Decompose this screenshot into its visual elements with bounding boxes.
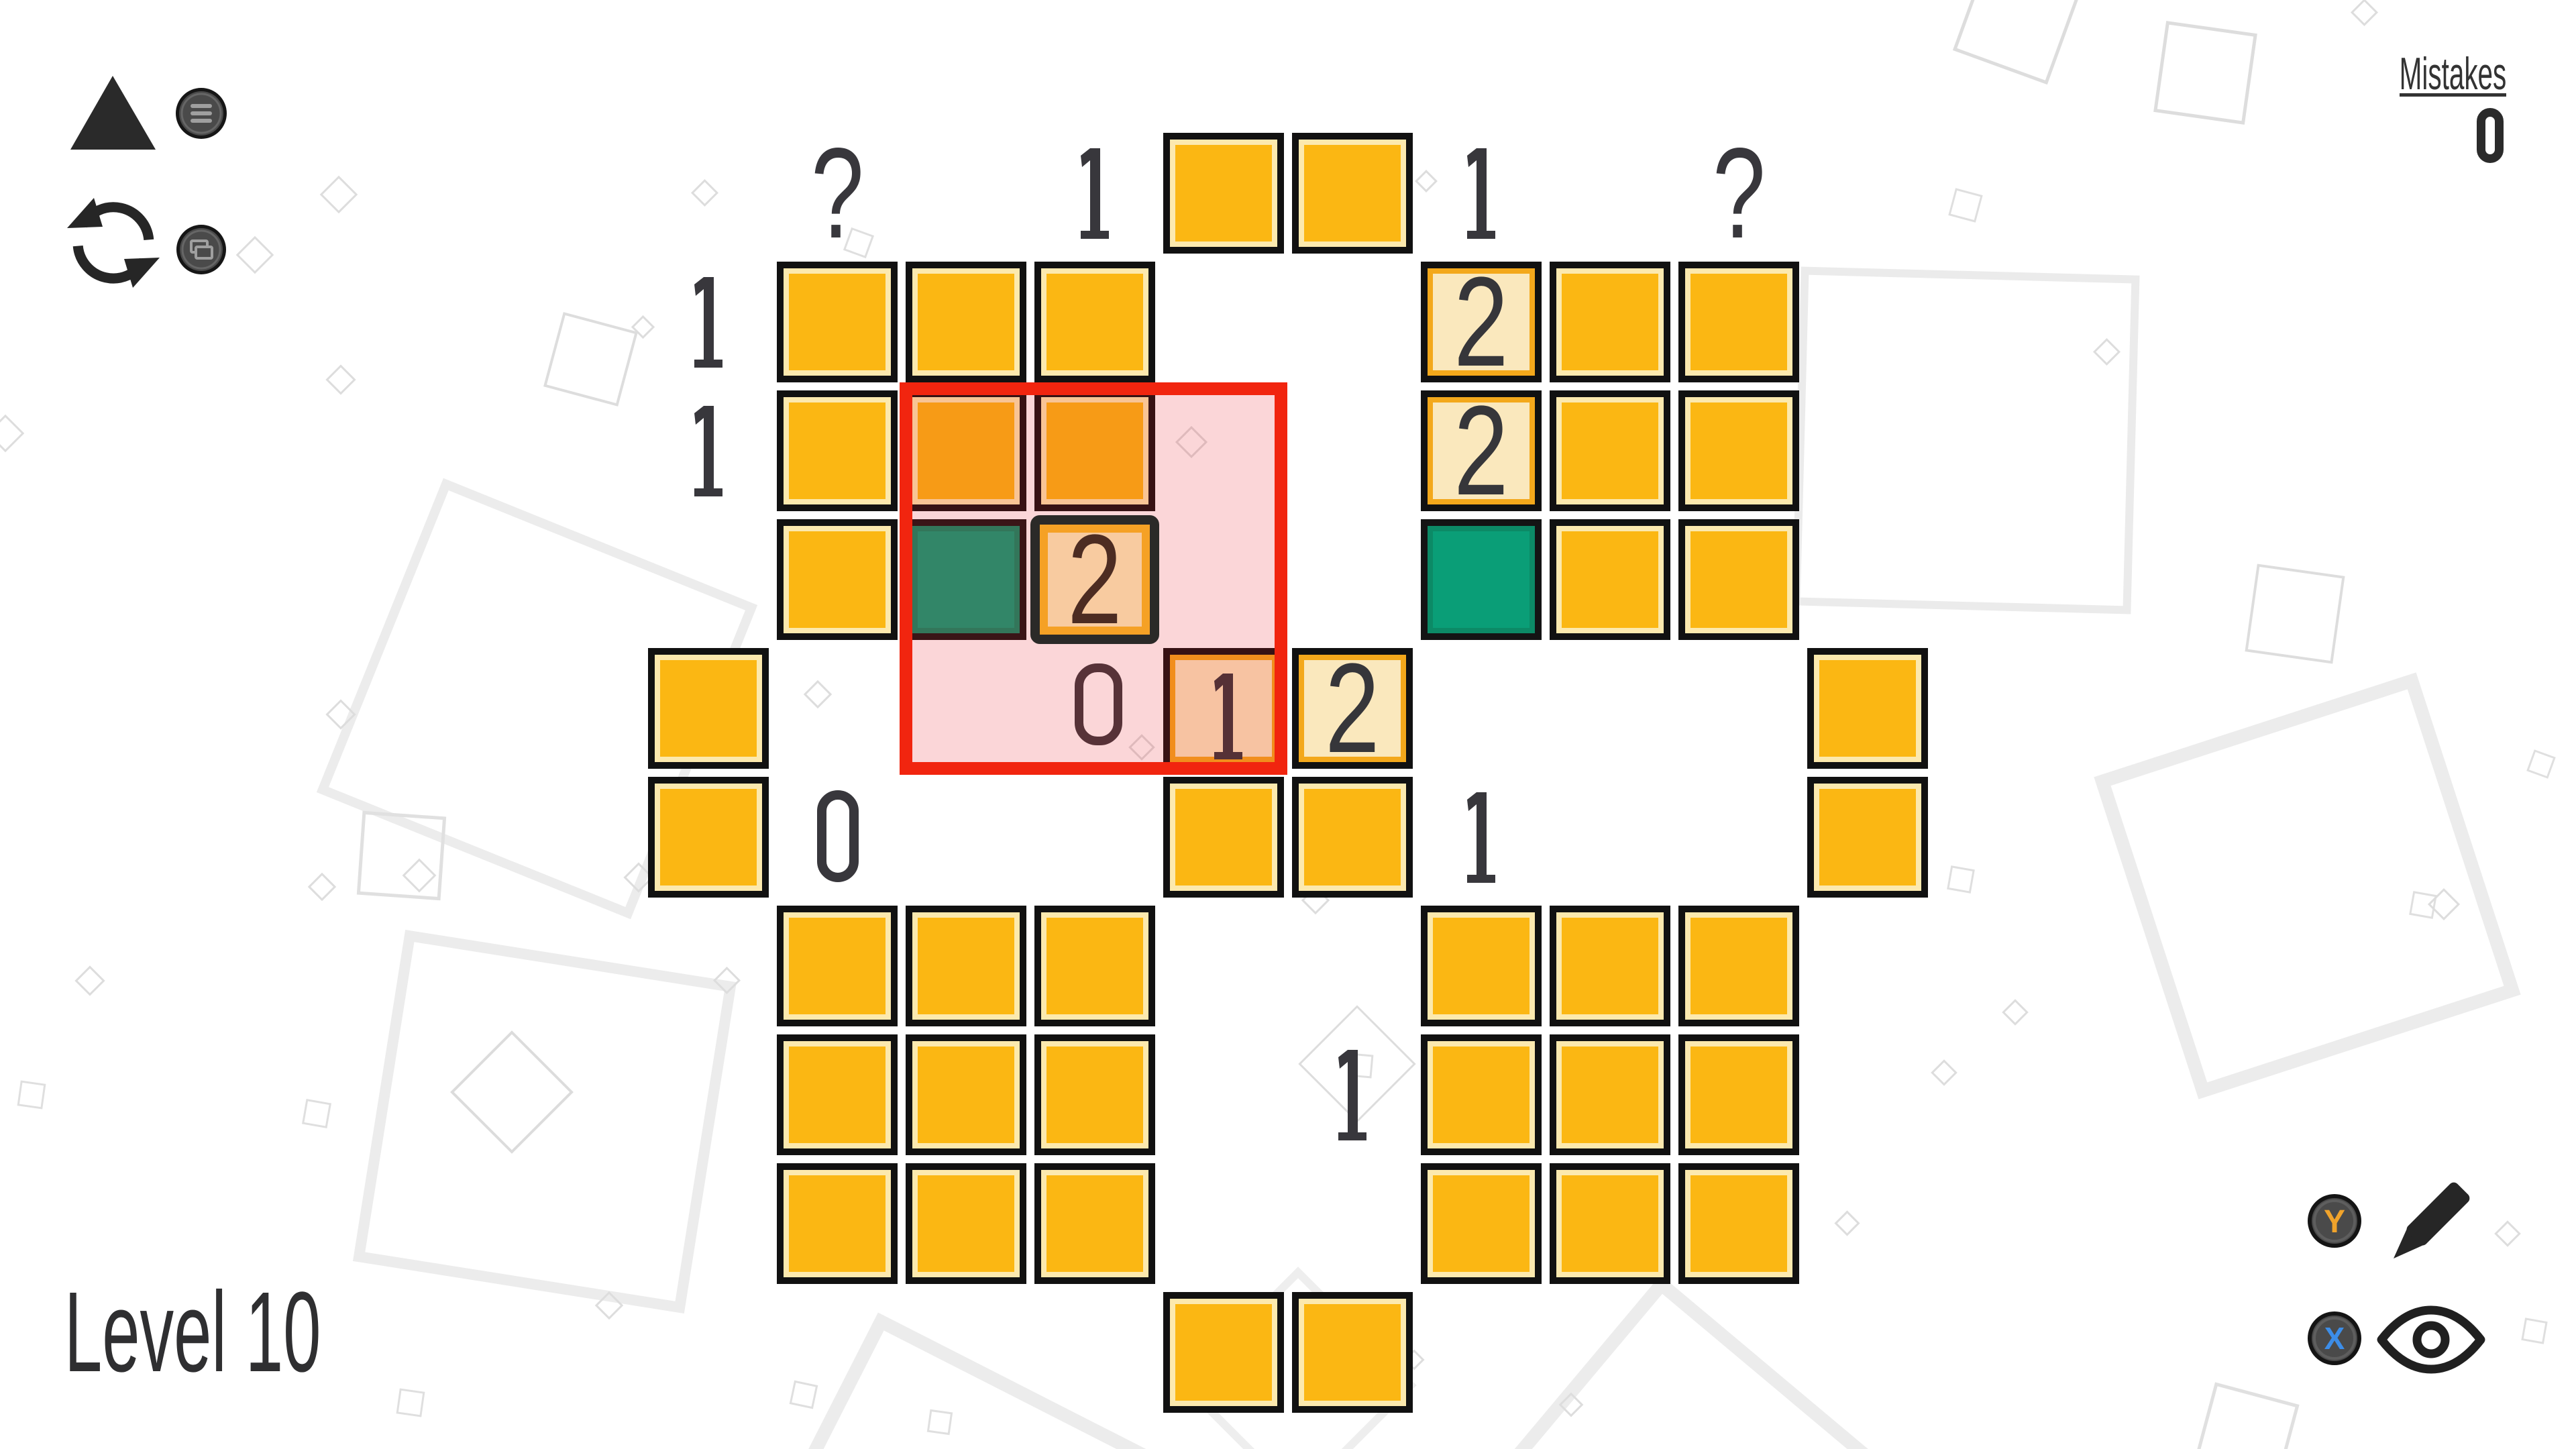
svg-text:Y: Y <box>2324 1204 2345 1240</box>
svg-text:X: X <box>2324 1321 2345 1356</box>
